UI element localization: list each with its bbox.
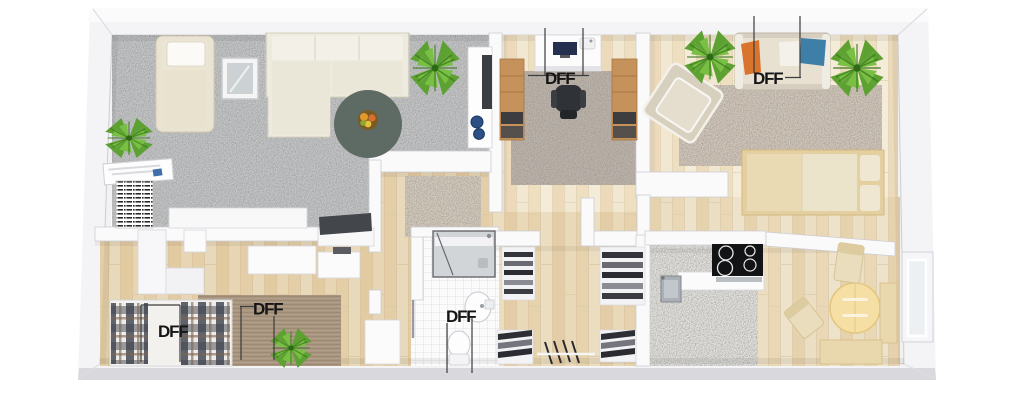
- svg-text:DFF: DFF: [253, 300, 283, 319]
- svg-text:DFF: DFF: [753, 69, 783, 88]
- svg-text:DFF: DFF: [158, 322, 188, 341]
- svg-text:DFF: DFF: [446, 307, 476, 326]
- svg-text:DFF: DFF: [545, 69, 575, 88]
